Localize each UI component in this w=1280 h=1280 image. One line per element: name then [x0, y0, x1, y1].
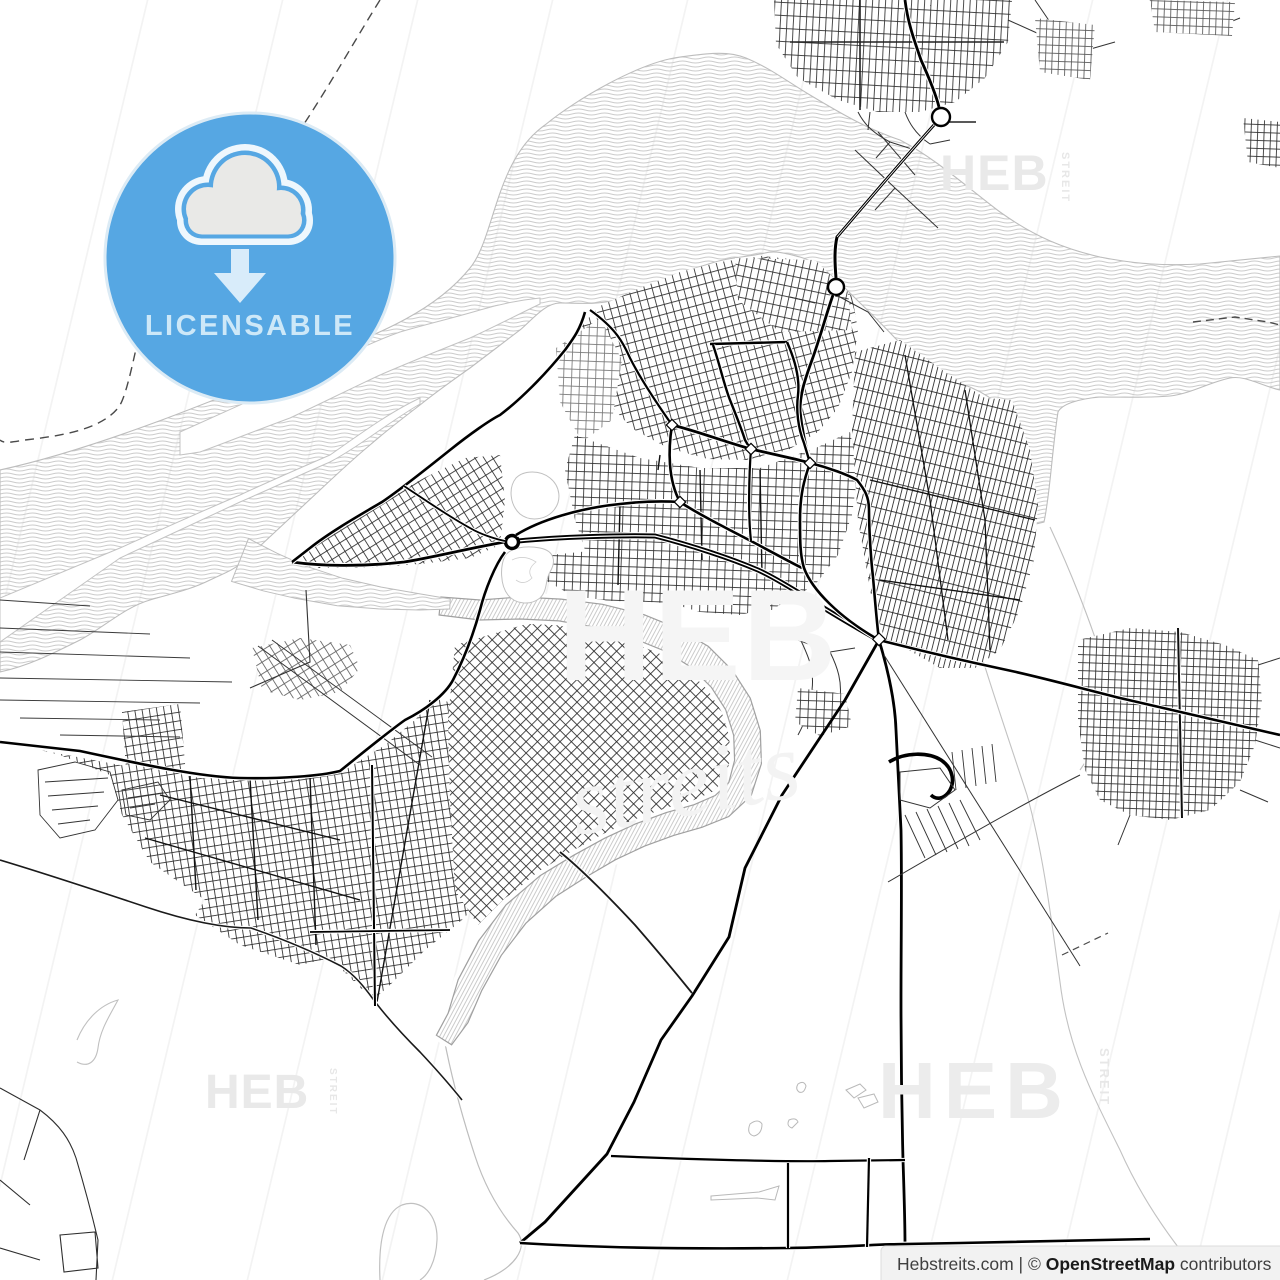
- svg-text:HEB: HEB: [205, 1066, 309, 1119]
- svg-text:STREIT: STREIT: [1097, 1048, 1112, 1106]
- svg-text:HEB: HEB: [878, 1046, 1071, 1135]
- svg-text:STREIT: STREIT: [1059, 152, 1071, 203]
- svg-text:LICENSABLE: LICENSABLE: [145, 310, 355, 342]
- svg-text:STREIT: STREIT: [327, 1068, 338, 1116]
- svg-text:Hebstreits.com | © OpenStreetM: Hebstreits.com | © OpenStreetMap contrib…: [897, 1254, 1272, 1274]
- svg-text:HEB: HEB: [940, 145, 1049, 201]
- svg-text:HEB: HEB: [558, 562, 838, 708]
